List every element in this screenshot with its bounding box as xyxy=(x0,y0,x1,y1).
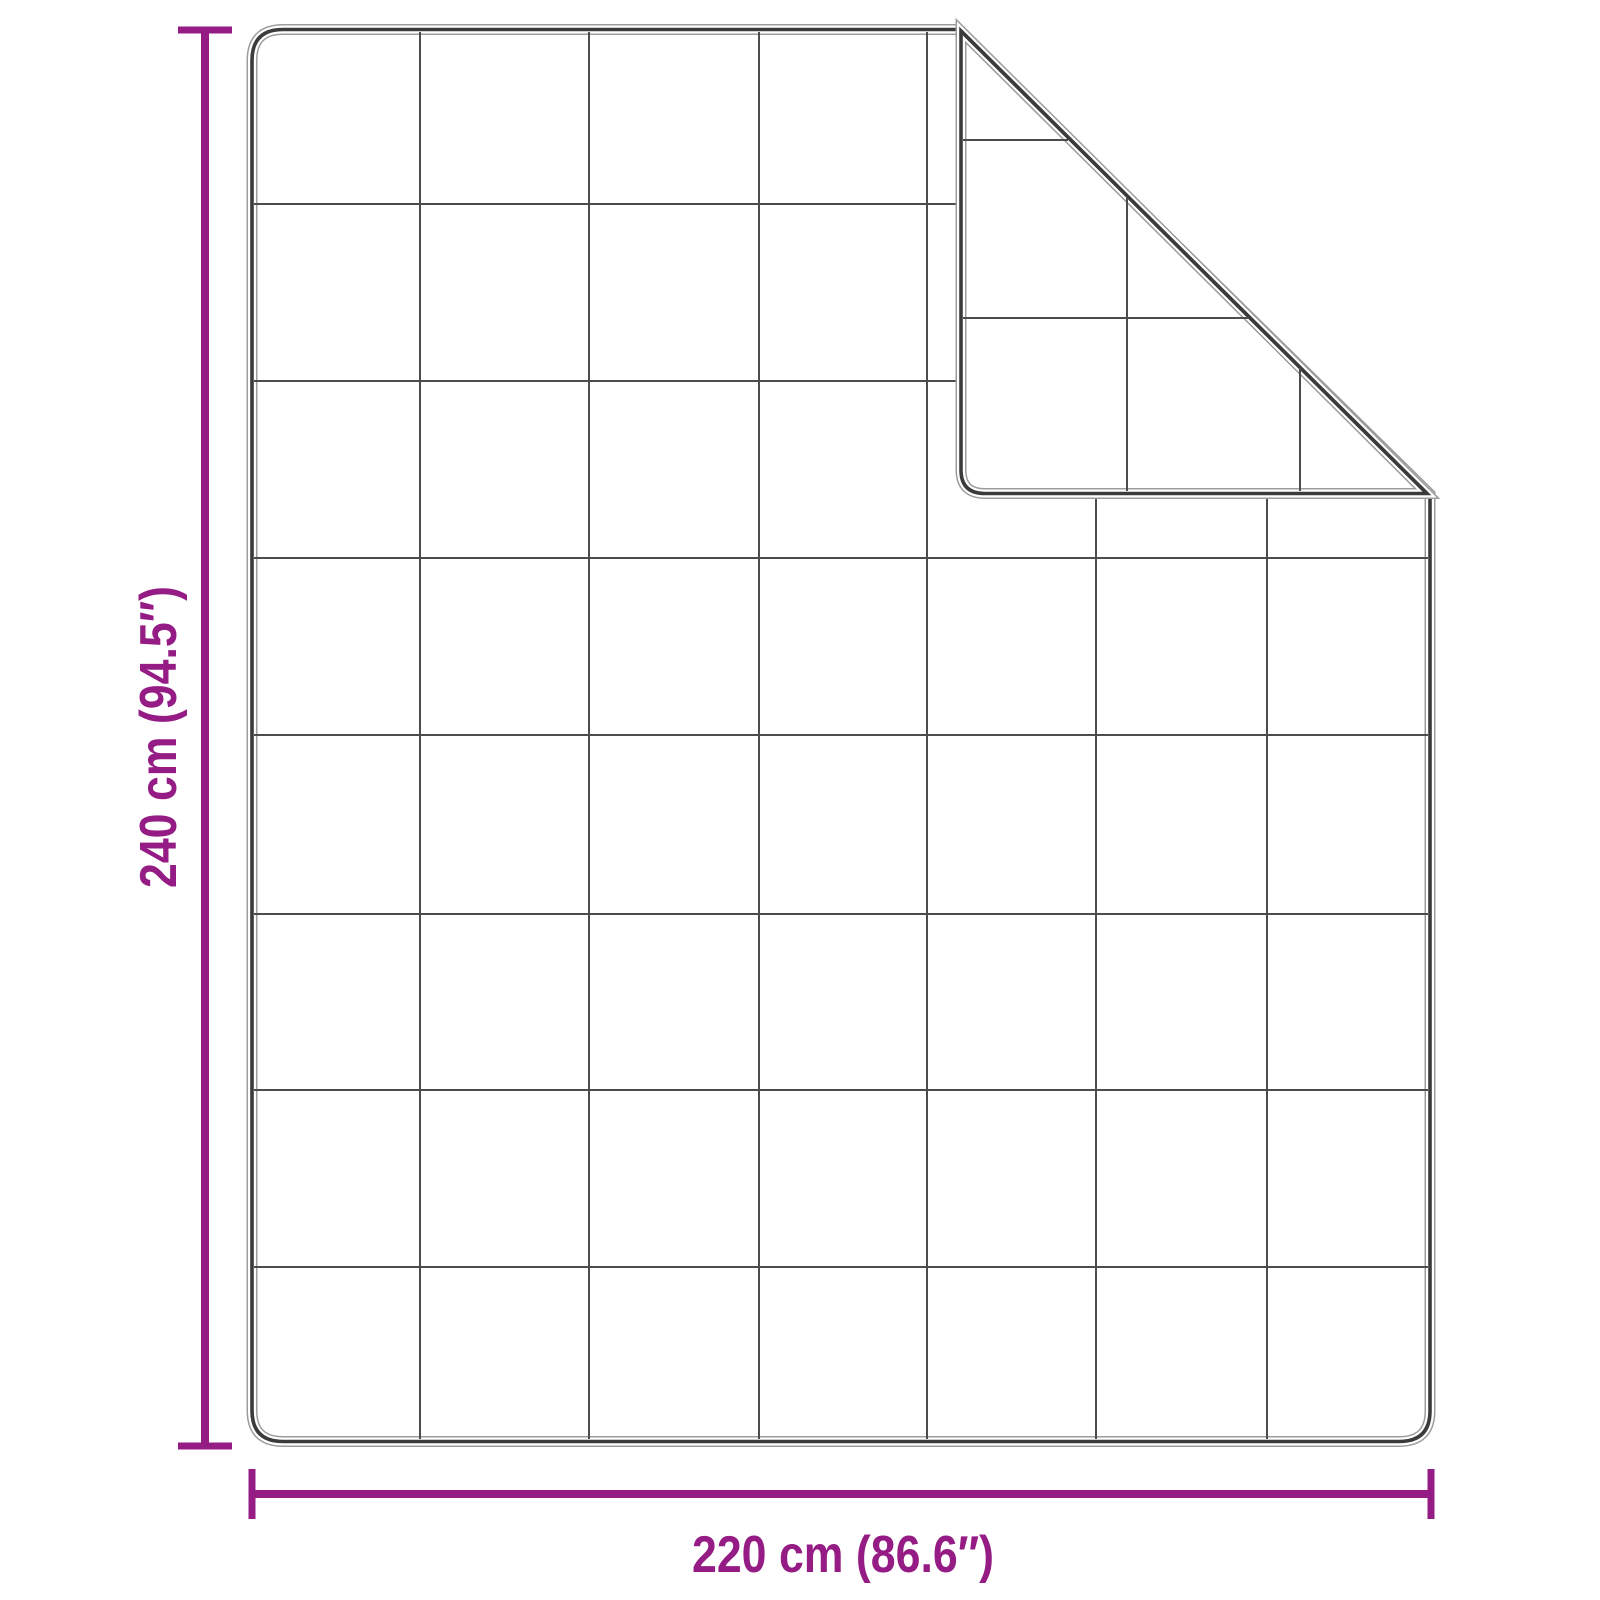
dimension-diagram: 240 cm (94.5″) 220 cm (86.6″) xyxy=(0,0,1600,1600)
width-label: 220 cm (86.6″) xyxy=(692,1526,994,1584)
dimension-diagram-canvas: 240 cm (94.5″) 220 cm (86.6″) xyxy=(0,0,1600,1600)
width-dimension xyxy=(252,1469,1431,1519)
blanket xyxy=(252,30,1430,1442)
folded-corner xyxy=(961,31,1427,494)
height-label: 240 cm (94.5″) xyxy=(130,586,188,888)
